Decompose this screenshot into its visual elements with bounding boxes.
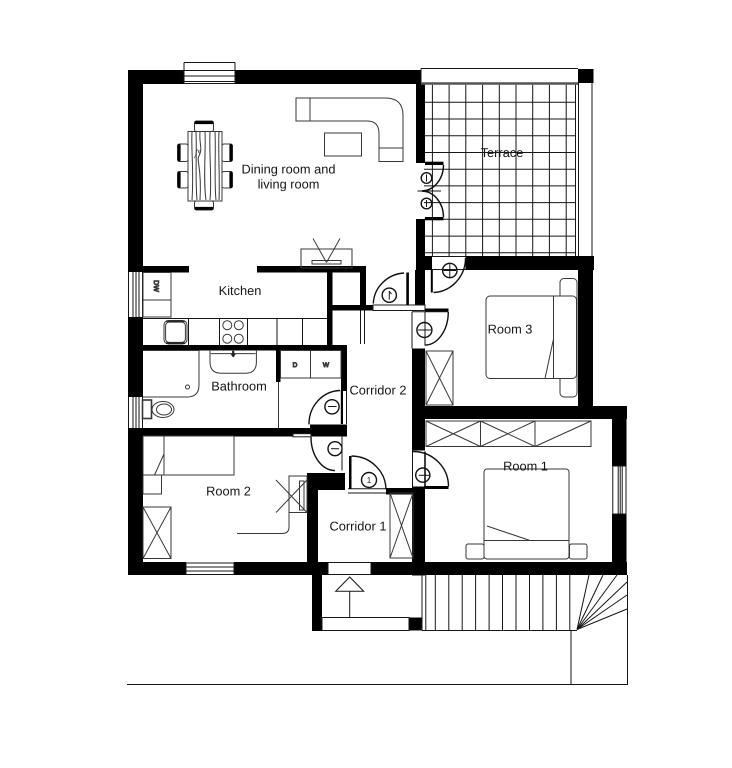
svg-text:Room 1: Room 1 (503, 459, 548, 474)
svg-text:Room 3: Room 3 (488, 322, 533, 337)
svg-text:D: D (293, 362, 298, 369)
svg-text:Bathroom: Bathroom (211, 379, 266, 394)
svg-text:Dining room and: Dining room and (242, 162, 336, 177)
svg-text:Terrace: Terrace (481, 145, 524, 160)
svg-text:W: W (323, 362, 330, 369)
svg-text:Kitchen: Kitchen (219, 283, 262, 298)
svg-text:Room 2: Room 2 (206, 484, 251, 499)
svg-text:Corridor 1: Corridor 1 (330, 519, 387, 534)
svg-text:DW: DW (152, 280, 159, 292)
svg-text:1: 1 (367, 475, 372, 485)
svg-text:Corridor 2: Corridor 2 (350, 383, 407, 398)
svg-text:living room: living room (258, 177, 320, 192)
